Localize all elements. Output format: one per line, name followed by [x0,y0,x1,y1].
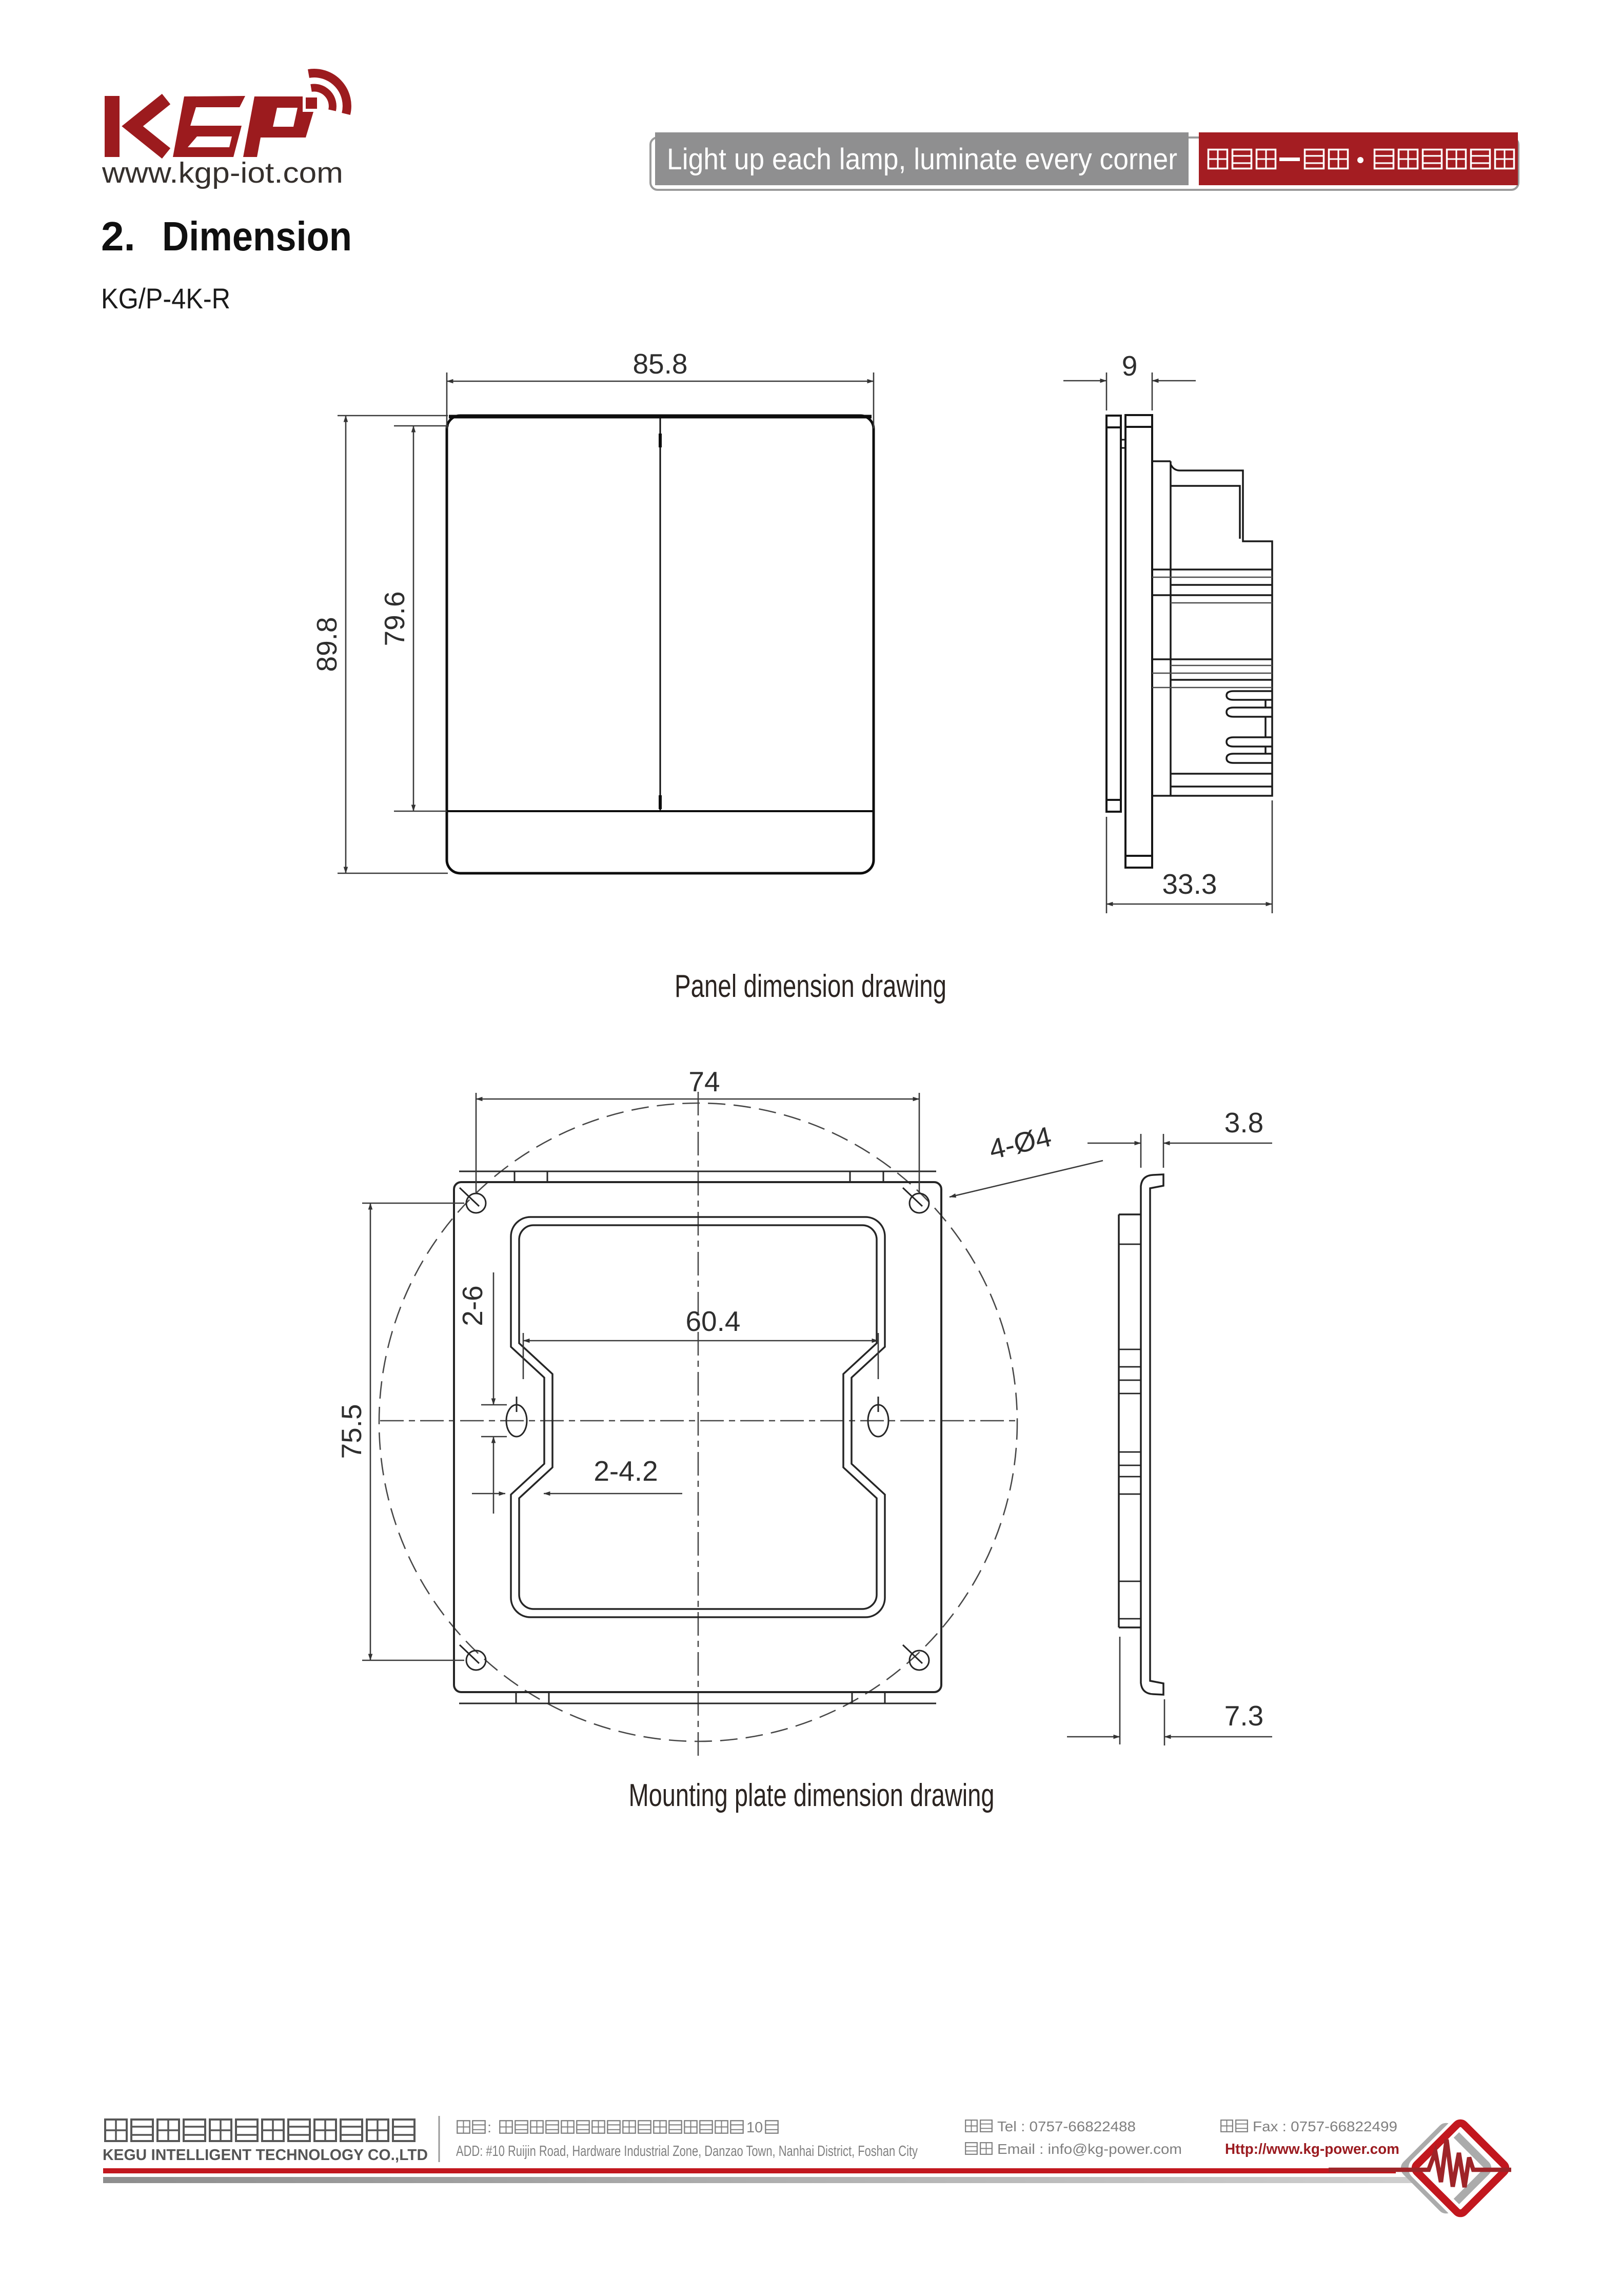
svg-text:Panel dimension drawing: Panel dimension drawing [675,969,946,1004]
svg-text:Dimension: Dimension [162,213,352,259]
svg-text:ADD: #10 Ruijin Road, Hardwar: ADD: #10 Ruijin Road, Hardware Industria… [456,2143,918,2160]
svg-text:Http://www.kg-power.com: Http://www.kg-power.com [1225,2141,1399,2157]
svg-text:85.8: 85.8 [632,348,687,380]
svg-text:4-Ø4: 4-Ø4 [986,1121,1054,1166]
svg-text:Tel : 0757-66822488: Tel : 0757-66822488 [997,2118,1136,2134]
svg-text:60.4: 60.4 [685,1305,740,1337]
svg-text:74: 74 [688,1066,720,1097]
svg-text:79.6: 79.6 [379,591,410,646]
svg-text:89.8: 89.8 [311,617,343,672]
svg-text:Email : info@kg-power.com: Email : info@kg-power.com [997,2141,1182,2157]
svg-text:www.kgp-iot.com: www.kgp-iot.com [102,156,343,189]
svg-text:10: 10 [746,2120,763,2136]
svg-text:2-6: 2-6 [457,1285,488,1326]
svg-text:75.5: 75.5 [335,1404,367,1459]
svg-text:2.: 2. [101,213,135,259]
svg-text:KG/P-4K-R: KG/P-4K-R [101,282,230,315]
svg-text:Fax : 0757-66822499: Fax : 0757-66822499 [1253,2118,1397,2134]
svg-text:9: 9 [1122,350,1138,382]
svg-text:Mounting plate dimension drawi: Mounting plate dimension drawing [629,1778,995,1813]
svg-text:Light up each lamp, luminate e: Light up each lamp, luminate every corne… [667,143,1177,176]
svg-text:7.3: 7.3 [1224,1700,1263,1732]
svg-text::: : [487,2120,491,2136]
svg-text:33.3: 33.3 [1162,868,1217,900]
svg-text:3.8: 3.8 [1224,1107,1263,1139]
svg-text:2-4.2: 2-4.2 [594,1455,658,1487]
svg-text:KEGU INTELLIGENT TECHNOLOGY CO: KEGU INTELLIGENT TECHNOLOGY CO.,LTD [103,2146,428,2164]
